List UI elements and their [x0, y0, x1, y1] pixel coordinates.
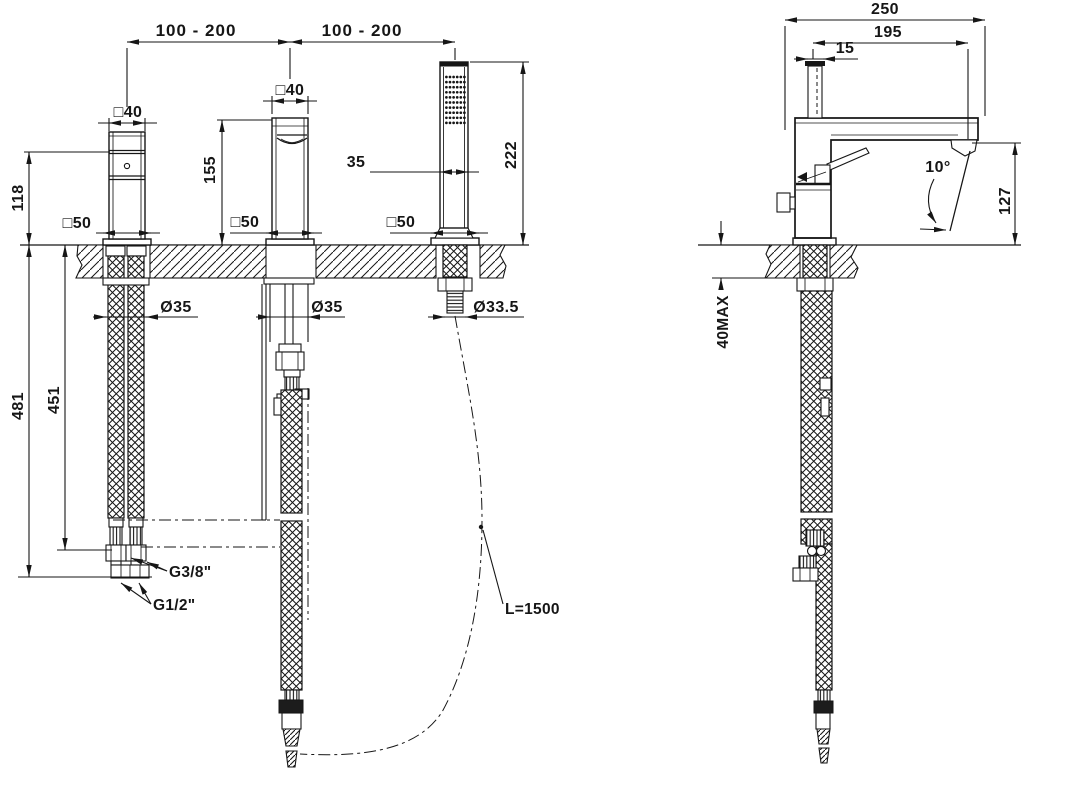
spout-tailpiece-and-hose	[262, 278, 314, 767]
dim-mixer-height: 118	[10, 184, 27, 211]
dim-spout-reach: 195	[874, 24, 902, 41]
side-dimensions: 250 195 15 10° 127 40MA	[712, 1, 1021, 349]
shower-shank	[438, 245, 472, 313]
label-hose-length: L=1500	[505, 601, 560, 618]
side-faucet-body	[777, 61, 978, 245]
dim-mixer-base-square: □50	[63, 215, 92, 232]
shower-rod	[805, 61, 825, 118]
g12-fitting	[111, 565, 149, 578]
shower-hose-routing	[113, 316, 503, 755]
shower-hose-connector	[279, 690, 303, 767]
dim-depth-g38: 451	[46, 386, 63, 414]
side-below-deck	[793, 245, 833, 763]
side-g-fitting	[793, 568, 818, 581]
dim-rod-width: 15	[836, 40, 855, 57]
side-view: 250 195 15 10° 127 40MA	[698, 1, 1021, 763]
g38-fittings	[106, 545, 146, 561]
dim-outlet-height: 127	[997, 187, 1014, 215]
mixer-supply-hoses	[103, 246, 149, 578]
dim-span-right: 100 - 200	[322, 21, 403, 40]
technical-drawing-page: 100 - 200 100 - 200 □40 □40 □50 □50	[0, 0, 1077, 790]
side-handle	[796, 148, 869, 190]
front-view: 100 - 200 100 - 200 □40 □40 □50 □50	[10, 21, 560, 767]
mixer-control	[103, 132, 151, 245]
dim-mixer-square: □40	[114, 104, 143, 121]
dim-spout-square: □40	[276, 82, 305, 99]
dim-spout-base-square: □50	[231, 214, 260, 231]
dim-total-depth: 250	[871, 1, 899, 18]
dim-span-left: 100 - 200	[156, 21, 237, 40]
aerator	[951, 140, 977, 156]
hose-curve	[300, 316, 482, 755]
label-thread-g38: G3/8"	[169, 564, 211, 581]
dim-spout-hole-dia: Ø35	[311, 299, 342, 316]
dim-shower-base-square: □50	[387, 214, 416, 231]
dim-deck-thickness-max: 40MAX	[715, 295, 732, 349]
dim-shower-height: 222	[503, 141, 520, 169]
dim-shower-width: 35	[347, 154, 366, 171]
shower-top-cap	[440, 62, 468, 67]
dim-spout-height: 155	[202, 156, 219, 184]
dim-spout-angle: 10°	[925, 159, 950, 176]
dim-depth-g12: 481	[10, 392, 27, 420]
faucet-installation-drawing: 100 - 200 100 - 200 □40 □40 □50 □50	[0, 0, 1077, 790]
hand-shower	[431, 62, 479, 245]
spout	[266, 118, 314, 245]
label-thread-g12: G1/2"	[153, 597, 195, 614]
dim-shower-hole-dia: Ø33.5	[473, 299, 519, 316]
side-deck	[698, 245, 1021, 278]
side-hose-connector	[814, 690, 833, 763]
side-back-knob	[777, 193, 795, 212]
dim-mixer-hole-dia: Ø35	[160, 299, 191, 316]
